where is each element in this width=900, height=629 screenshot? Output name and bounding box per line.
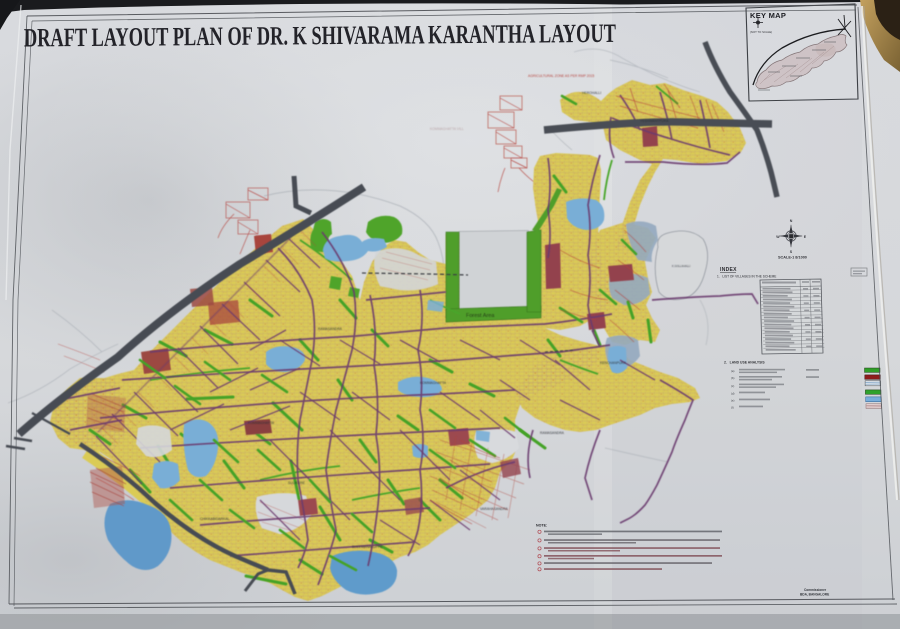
svg-text:DRAFT LAYOUT PLAN OF DR. K SHI: DRAFT LAYOUT PLAN OF DR. K SHIVARAMA KAR…	[24, 18, 616, 53]
svg-text:Forest Area: Forest Area	[466, 313, 495, 319]
svg-text:K.GOLLAHALLI: K.GOLLAHALLI	[672, 264, 691, 268]
svg-text:SCALE-1 8/1000: SCALE-1 8/1000	[778, 256, 807, 260]
svg-text:AGRICULTURAL ZONE AS PER RMP 2: AGRICULTURAL ZONE AS PER RMP 2015	[528, 74, 594, 78]
svg-text:Commissioner: Commissioner	[804, 588, 827, 592]
svg-text:RAMASANDRA: RAMASANDRA	[540, 431, 565, 435]
svg-text:1. LIST OF VILLAGES IN THE S: 1. LIST OF VILLAGES IN THE SCHEME	[717, 275, 776, 279]
svg-text:CHIKKABIDARKAL: CHIKKABIDARKAL	[200, 517, 230, 521]
svg-text:VARAHASANDRA: VARAHASANDRA	[480, 507, 509, 511]
svg-text:SULIKERE: SULIKERE	[288, 481, 306, 485]
svg-text:KEY MAP: KEY MAP	[750, 11, 786, 20]
svg-text:KOMMAGHATTA: KOMMAGHATTA	[420, 381, 447, 385]
svg-text:(e): (e)	[731, 399, 734, 403]
svg-text:KOMMAGHATTA: KOMMAGHATTA	[248, 421, 275, 425]
svg-text:HEROHALLI: HEROHALLI	[582, 91, 601, 95]
svg-text:(c): (c)	[731, 384, 734, 388]
svg-text:2. LAND USE ANALYSIS: 2. LAND USE ANALYSIS	[724, 361, 765, 365]
svg-text:(NOT TO SCALE): (NOT TO SCALE)	[750, 30, 772, 34]
svg-text:YESHWANTPURA: YESHWANTPURA	[640, 119, 669, 123]
svg-text:N: N	[790, 219, 793, 223]
svg-text:KENCHANPURA: KENCHANPURA	[600, 361, 627, 365]
svg-text:RAMASANDRA: RAMASANDRA	[318, 327, 343, 331]
svg-text:NOTE:: NOTE:	[536, 524, 547, 528]
svg-text:KOMMAGHATTA VILL: KOMMAGHATTA VILL	[430, 127, 464, 131]
svg-text:BHEEMANAKUPPE: BHEEMANAKUPPE	[352, 545, 383, 549]
svg-text:(b): (b)	[731, 376, 734, 380]
svg-text:W: W	[776, 235, 780, 239]
svg-text:(d): (d)	[731, 392, 734, 396]
svg-text:(a): (a)	[731, 369, 734, 373]
svg-text:BDA, BANGALORE: BDA, BANGALORE	[800, 593, 829, 597]
svg-text:(f): (f)	[731, 406, 734, 410]
